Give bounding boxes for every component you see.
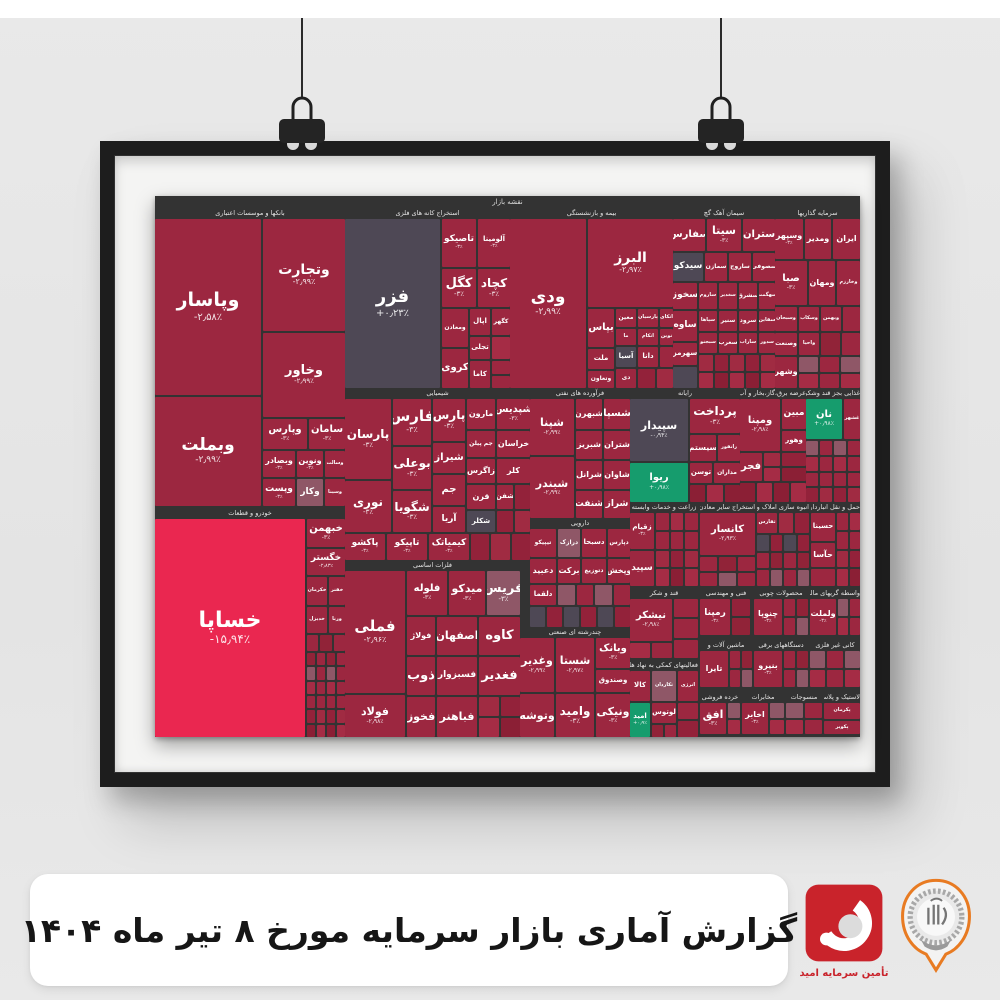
- hanging-string-right: [720, 18, 722, 98]
- treemap-cell-pharma: وپخش: [608, 559, 630, 583]
- treemap-cell-small: [834, 488, 846, 502]
- market-map-poster: نقشه بازار بانکها و موسسات اعتباریوپاسار…: [155, 196, 860, 737]
- cell-ticker: دتوزیع: [585, 568, 604, 574]
- treemap-cell-multi-industry: وغدیر-۲٫۹۹٪: [520, 638, 554, 692]
- treemap-cell-small: [337, 725, 345, 737]
- treemap-cell-small: [827, 651, 842, 668]
- treemap-cell-small: [821, 333, 840, 355]
- treemap-cell-small: [690, 485, 705, 502]
- treemap-cell-auto-parts: خگستر-۲٫۸۳٪: [307, 549, 345, 575]
- sector-other-mining: استخراج سایر معادنکانسار-۲٫۹۳٪: [700, 502, 755, 586]
- cell-ticker: معین: [619, 315, 634, 321]
- cell-ticker: اپال: [473, 318, 487, 325]
- cell-ticker: ریوا: [649, 473, 668, 484]
- cell-ticker: شپدیس: [497, 405, 530, 416]
- cell-change-percent: -۳٪: [498, 596, 508, 604]
- cell-ticker: شفن: [497, 493, 513, 500]
- treemap-cell-small: [770, 703, 784, 718]
- cell-ticker: سهگمت: [759, 293, 775, 298]
- treemap-cell-small: [656, 569, 669, 586]
- treemap-cell-small: [581, 607, 596, 627]
- cell-change-percent: -۳٪: [403, 549, 410, 555]
- cell-ticker: سیستم: [690, 444, 716, 452]
- cell-ticker: پکرمان: [833, 708, 850, 713]
- cell-change-percent: -۳٪: [720, 238, 729, 245]
- cell-ticker: تیپیکو: [535, 540, 552, 546]
- sector-utilities: عرضه برق،گاز،بخار و آب گرمومپنا-۲٫۹۸٪مبی…: [740, 388, 806, 502]
- cell-change-percent: -۳٪: [406, 426, 417, 435]
- treemap-cell-small: [764, 468, 780, 481]
- treemap-cell-small: [595, 585, 612, 605]
- treemap-cell-small: [761, 373, 775, 389]
- cell-ticker: پاکشو: [352, 539, 379, 548]
- treemap-cell-small: [738, 573, 755, 587]
- sector-cement-lime-gypsum: سیمان آهک گچسفارسسیتا-۳٪سترانسیدکوسمازنس…: [673, 208, 775, 388]
- cell-ticker: شپنا: [540, 417, 564, 429]
- cell-ticker: سغرب: [719, 340, 737, 346]
- treemap-cell-small: [850, 513, 861, 530]
- treemap-cell-insurance-pension: وتعاون: [588, 371, 614, 388]
- cell-change-percent: -۳٪: [764, 619, 771, 625]
- treemap-cell-investments: وسکاب: [799, 307, 819, 331]
- treemap-cell-basic-metals: فسبزوار: [437, 657, 477, 695]
- treemap-cell-small: [307, 667, 315, 679]
- treemap-cell-small: [742, 670, 752, 687]
- sector-transport-warehousing: حمل و نقل انبارداری وحسیناحآسا: [811, 502, 860, 586]
- cell-change-percent: -۲٫۸۳٪: [319, 564, 333, 570]
- treemap-cell-cement-lime-gypsum: سغدیر: [719, 283, 737, 309]
- cell-ticker: سصوفی: [753, 264, 775, 270]
- treemap-cell-small: [771, 535, 783, 551]
- cell-ticker: خبهمن: [309, 524, 343, 535]
- treemap-cell-cement-lime-gypsum: سمازن: [705, 253, 727, 281]
- sector-header-agriculture: زراعت و خدمات وابسته: [630, 502, 698, 513]
- treemap-cell-small: [671, 513, 684, 530]
- treemap-cell-small: [512, 534, 530, 560]
- cell-ticker: فملی: [354, 619, 395, 635]
- cell-ticker: البرز: [614, 251, 647, 266]
- cell-ticker: سپید: [631, 564, 652, 573]
- cell-ticker: سپیدار: [641, 420, 677, 432]
- cell-ticker: کانسار: [711, 525, 744, 536]
- cell-change-percent: -۲٫۵۸٪: [194, 312, 222, 323]
- treemap-cell-chemicals: جم پیلن: [467, 431, 495, 457]
- sector-chemicals: شیمیاییپارسان-۳٪نوری-۳٪پاکشو-۳٪تاپیکو-۳٪…: [345, 388, 530, 560]
- treemap-cell-small: [674, 599, 698, 617]
- treemap-cell-small: [671, 532, 684, 549]
- sector-auto-parts: خودرو و قطعاتخساپا-۱۵٫۹۴٪خبهمن-۳٪خگستر-۲…: [155, 508, 345, 737]
- cell-ticker: شبندر: [536, 478, 568, 490]
- treemap-cell-small: [771, 570, 783, 586]
- cell-ticker: فخوز: [407, 711, 435, 723]
- cell-change-percent: -۳٪: [423, 595, 432, 602]
- hanging-string-left: [301, 18, 303, 98]
- cell-ticker: کاوه: [485, 629, 513, 643]
- cell-ticker: خراسان: [498, 440, 529, 448]
- cell-ticker: شنفت: [576, 500, 602, 509]
- cell-change-percent: -۲٫۹۸٪: [752, 427, 769, 434]
- cell-change-percent: -۳٪: [764, 671, 771, 677]
- sector-header-pharma: دارویی: [530, 518, 630, 529]
- cell-ticker: ومعادن: [444, 325, 465, 331]
- sector-banks: بانکها و موسسات اعتباریوپاسار-۲٫۵۸٪وتجار…: [155, 208, 345, 506]
- treemap-cell-small: [656, 513, 669, 530]
- sector-header-financial-intermediation: واسطه گریهای مالی: [810, 588, 860, 599]
- cell-ticker: شسپا: [604, 409, 630, 420]
- treemap-cell-auto-parts: خبهمن-۳٪: [307, 519, 345, 547]
- treemap-cell-oil-products: شاوان: [604, 461, 630, 489]
- treemap-cell-multi-industry: وتوشه: [520, 694, 554, 737]
- treemap-cell-banks: وپاسار-۲٫۵۸٪: [155, 219, 261, 395]
- cell-change-percent: -۳٪: [609, 655, 618, 662]
- treemap-cell-banks: وتجارت-۲٫۹۹٪: [263, 219, 345, 331]
- cell-ticker: مبین: [783, 409, 804, 418]
- treemap-cell-small: [797, 599, 808, 616]
- cell-ticker: آلومینا: [483, 236, 505, 243]
- treemap-cell-pharma: دتوزیع: [582, 559, 606, 583]
- treemap-cell-basic-metals: اصفهان: [437, 617, 477, 655]
- treemap-cell-basic-metals: فباهنر: [437, 697, 477, 737]
- cell-ticker: جم: [441, 485, 456, 496]
- treemap-cell-cement-lime-gypsum: سشرق: [739, 283, 757, 309]
- treemap-cell-small: [764, 453, 780, 466]
- treemap-cell-small: [820, 441, 832, 455]
- treemap-cell-auto-parts: خساپا-۱۵٫۹۴٪: [155, 519, 305, 737]
- treemap-cell-auto-parts: ورنا: [329, 607, 345, 633]
- treemap-cell-metal-ores-mining: آلومینا-۳٪: [478, 219, 510, 267]
- cell-change-percent: +۰٫۹۸٪: [814, 421, 834, 428]
- cell-ticker: پرداخت: [693, 405, 737, 418]
- cell-change-percent: -۳٪: [445, 549, 452, 555]
- cell-change-percent: -۲٫۹۷٪: [619, 266, 642, 275]
- treemap-cell-small: [757, 570, 769, 586]
- cell-ticker: نیشکر: [636, 611, 666, 622]
- treemap-cell-small: [699, 355, 713, 371]
- treemap-cell-basic-metals: فلوله-۳٪: [407, 571, 447, 615]
- sector-header-utilities: عرضه برق،گاز،بخار و آب گرم: [740, 388, 806, 399]
- treemap-cell-small: [784, 570, 796, 586]
- treemap-cell-small: [327, 710, 335, 722]
- treemap-cell-small: [761, 355, 775, 371]
- treemap-cell-small: [307, 725, 315, 737]
- treemap-cell-real-estate: ثفارس: [757, 513, 777, 533]
- cell-ticker: سهرمز: [673, 350, 697, 357]
- treemap-cell-banks: وکار: [297, 479, 323, 506]
- cell-ticker: فریس: [487, 582, 520, 596]
- treemap-cell-small: [307, 682, 315, 694]
- cell-ticker: وکار: [300, 488, 319, 497]
- cell-ticker: وسبحان: [776, 316, 796, 321]
- cell-ticker: سپاها: [701, 318, 715, 323]
- cell-ticker: توسن: [691, 469, 711, 476]
- cell-ticker: فولاژ: [411, 632, 432, 640]
- cell-ticker: ومپنا: [748, 416, 772, 427]
- treemap-cell-cement-lime-gypsum: سغرب: [719, 333, 737, 353]
- cell-ticker: فزر: [376, 288, 409, 307]
- cell-ticker: فولاد: [361, 706, 389, 718]
- cell-ticker: وتوشه: [520, 710, 554, 722]
- treemap-cell-multi-industry: وصندوق: [596, 670, 630, 692]
- treemap-cell-small: [797, 670, 808, 687]
- treemap-cell-investments: صبا-۳٪: [775, 261, 807, 305]
- treemap-cell-small: [577, 585, 594, 605]
- treemap-cell-small: [337, 710, 345, 722]
- cell-ticker: شستا: [560, 655, 591, 667]
- cell-ticker: دعبید: [533, 567, 554, 575]
- cell-ticker: مداران: [717, 470, 737, 476]
- treemap-cell-rubber-plastic: پکویر: [824, 721, 860, 734]
- treemap-cell-chemicals: خراسان: [497, 431, 530, 457]
- treemap-cell-small: [842, 333, 861, 355]
- treemap-cell-small: [732, 618, 750, 635]
- treemap-cell-small: [725, 485, 740, 502]
- treemap-cell-small: [337, 653, 345, 665]
- binder-clip-right-icon: [698, 92, 744, 150]
- treemap-cell-pharma: دعبید: [530, 559, 556, 583]
- sector-textiles: منسوجات: [786, 692, 822, 737]
- treemap-cell-cement-lime-gypsum: سرود: [739, 311, 757, 331]
- treemap-cell-small: [834, 457, 846, 471]
- cell-change-percent: -۲٫۹۹٪: [294, 378, 314, 386]
- cell-ticker: شبریز: [577, 441, 601, 449]
- cell-change-percent: -۳٪: [711, 619, 718, 625]
- cell-ticker: کالا: [634, 682, 646, 689]
- cell-ticker: کگل: [446, 277, 473, 291]
- cell-ticker: خفنر: [331, 588, 343, 593]
- treemap-cell-small: [791, 483, 806, 502]
- treemap-cell-auxiliary-financial: امید+۰٫۹٪: [630, 703, 650, 737]
- treemap-cell-insurance-pension: ما: [616, 329, 636, 345]
- treemap-cell-chemicals: مارون: [467, 399, 495, 429]
- treemap-cell-small: [471, 534, 489, 560]
- treemap-cell-small: [327, 725, 335, 737]
- treemap-cell-small: [795, 513, 809, 533]
- cell-change-percent: -۳٪: [489, 291, 499, 299]
- cell-change-percent: -۲٫۹۹٪: [544, 490, 561, 497]
- cell-ticker: تجلی: [471, 344, 489, 351]
- treemap-cell-small: [820, 457, 832, 471]
- sector-computer: رایانهسپیدار-۰٫۹۴٪ریوا+۰٫۹۸٪پرداخت-۳٪سیس…: [630, 388, 740, 502]
- cell-ticker: پارس: [433, 409, 465, 422]
- treemap-cell-small: [337, 682, 345, 694]
- cell-ticker: سمازن: [706, 264, 727, 270]
- cell-ticker: شکلر: [472, 518, 490, 525]
- treemap-cell-small: [850, 618, 860, 635]
- omid-investment-logo: تأمین سرمایه امید: [799, 883, 889, 989]
- sector-header-computer: رایانه: [630, 388, 740, 399]
- sector-header-chemicals: شیمیایی: [345, 388, 530, 399]
- treemap-cell-wood-products: چنوپا-۳٪: [754, 599, 782, 635]
- cell-change-percent: -۳٪: [363, 442, 373, 450]
- treemap-cell-basic-metals: فغدیر: [479, 657, 520, 695]
- treemap-cell-insurance-pension: ملت: [588, 349, 614, 369]
- sector-header-investments: سرمایه گذاریها: [775, 208, 860, 219]
- sector-basic-metals: فلزات اساسیفملی-۲٫۹۶٪فولاد-۲٫۹۸٪فلوله-۳٪…: [345, 560, 520, 737]
- treemap-cell-metal-ores-mining: کاما: [470, 361, 490, 388]
- treemap-cell-small: [657, 369, 674, 388]
- treemap-cell-small: [746, 373, 760, 389]
- treemap-cell-small: [678, 703, 698, 719]
- treemap-cell-pharma: برکت: [558, 559, 580, 583]
- treemap-cell-small: [492, 361, 510, 374]
- report-banner-title: گزارش آماری بازار سرمایه مورخ ۸ تیر ماه …: [21, 911, 798, 950]
- cell-ticker: سیدکو: [674, 262, 703, 271]
- sector-header-sugar: قند و شکر: [630, 588, 698, 599]
- treemap-cell-small: [728, 703, 740, 718]
- cell-change-percent: -۳٪: [751, 720, 758, 726]
- treemap-cell-small: [784, 670, 795, 687]
- treemap-cell-small: [838, 599, 848, 616]
- treemap-cell-small: [558, 585, 575, 605]
- sector-header-non-metallic-minerals: کانی غیر فلزی: [810, 640, 860, 651]
- sector-header-food-ex-sugar: غذایی بجز قند وشکر: [806, 388, 860, 399]
- cell-change-percent: +۰٫۲۳٪: [376, 308, 409, 319]
- treemap-cell-small: [806, 488, 818, 502]
- cell-ticker: سنیر: [721, 318, 736, 324]
- treemap-cell-metal-ores-mining: ومعادن: [442, 309, 468, 347]
- treemap-cell-oil-products: شسپا: [604, 399, 630, 429]
- treemap-cell-banks: وبملت-۲٫۹۹٪: [155, 397, 261, 506]
- cell-ticker: رانفور: [721, 445, 737, 450]
- cell-change-percent: -۳٪: [463, 596, 472, 603]
- cell-ticker: برکت: [558, 567, 579, 575]
- sector-header-other-mining: استخراج سایر معادن: [700, 502, 755, 513]
- cell-ticker: سیتا: [712, 225, 736, 237]
- treemap-cell-small: [674, 619, 698, 637]
- cell-ticker: انرژی: [681, 683, 695, 688]
- cell-ticker: وخاور: [285, 364, 323, 378]
- treemap-cell-small: [656, 551, 669, 568]
- cell-ticker: سغدیر: [720, 293, 736, 298]
- report-banner: گزارش آماری بازار سرمایه مورخ ۸ تیر ماه …: [30, 874, 788, 986]
- cell-ticker: دی: [622, 375, 631, 381]
- treemap-cell-cement-lime-gypsum: سپاها: [699, 311, 717, 331]
- cell-ticker: وبصادر: [265, 457, 293, 465]
- cell-ticker: سرود: [740, 318, 756, 324]
- cell-ticker: ثفارس: [758, 520, 775, 525]
- treemap-cell-computer: سپیدار-۰٫۹۴٪: [630, 399, 688, 461]
- treemap-cell-banks: وخاور-۲٫۹۹٪: [263, 333, 345, 417]
- treemap-cell-food-ex-sugar: غشهر: [844, 399, 860, 439]
- cell-ticker: سدور: [760, 340, 774, 345]
- treemap-cell-small: [685, 569, 698, 586]
- cell-ticker: فارس: [393, 409, 431, 425]
- treemap-cell-basic-metals: میدکو-۳٪: [449, 571, 485, 615]
- treemap-cell-banks: وپست-۳٪: [263, 479, 295, 506]
- treemap-cell-small: [838, 618, 848, 635]
- sector-header-basic-metals: فلزات اساسی: [345, 560, 520, 571]
- treemap-cell-insurance-pension: آسیا: [616, 347, 636, 367]
- cell-ticker: شرانل: [576, 471, 602, 479]
- treemap-cell-investments: ومهان: [809, 261, 835, 305]
- sector-electrical-devices: دستگاههای برقیبنیرو-۳٪: [754, 640, 808, 690]
- cell-change-percent: -۳٪: [275, 466, 282, 472]
- cell-ticker: وهور: [785, 437, 803, 444]
- treemap-cell-small: [798, 535, 810, 551]
- bank-sepah-emblem-icon: [898, 877, 974, 975]
- treemap-cell-small: [699, 373, 713, 389]
- treemap-cell-small: [665, 725, 676, 737]
- treemap-cell-small: [515, 485, 530, 509]
- treemap-cell-metal-ores-mining: فزر+۰٫۲۳٪: [345, 219, 440, 388]
- cell-change-percent: -۲٫۹۹٪: [544, 430, 561, 437]
- treemap-cell-cement-lime-gypsum: ساراب: [739, 333, 757, 353]
- sector-header-real-estate: انبوه سازی املاک و: [757, 502, 809, 513]
- treemap-cell-small: [779, 513, 793, 533]
- cell-ticker: ساروم: [700, 293, 716, 298]
- treemap-cell-agriculture: زقیام-۳٪: [630, 513, 654, 549]
- treemap-cell-small: [317, 696, 325, 708]
- treemap-cell-chemicals: کلر: [497, 459, 530, 483]
- cell-change-percent: -۳٪: [306, 466, 313, 472]
- treemap-cell-transport-warehousing: حسینا: [811, 513, 835, 541]
- treemap-cell-cement-lime-gypsum: سیتا-۳٪: [707, 219, 741, 251]
- treemap-cell-small: [811, 569, 835, 586]
- sector-food-ex-sugar: غذایی بجز قند وشکرنان+۰٫۹۸٪غشهر: [806, 388, 860, 502]
- treemap-cell-small: [820, 488, 832, 502]
- treemap-cell-auto-parts: خفنر: [329, 577, 345, 605]
- treemap-cell-computer: پرداخت-۳٪: [690, 399, 740, 433]
- cell-ticker: ملت: [594, 355, 609, 362]
- cell-change-percent: -۰٫۹۴٪: [651, 433, 668, 440]
- treemap-cell-cement-lime-gypsum: سهگمت: [759, 283, 775, 309]
- cell-ticker: حآسا: [813, 551, 833, 559]
- treemap-cell-oil-products: شتران: [604, 431, 630, 459]
- cell-ticker: امید: [633, 713, 647, 720]
- cell-ticker: وسالت: [326, 461, 343, 466]
- treemap-cell-small: [740, 483, 755, 502]
- cell-ticker: وصندوق: [599, 677, 628, 684]
- treemap-cell-small: [700, 573, 717, 587]
- cell-ticker: وخارزم: [840, 280, 858, 285]
- cell-change-percent: -۲٫۹۶٪: [364, 636, 387, 645]
- cell-ticker: کروی: [442, 363, 468, 374]
- treemap-cell-computer: رانفور: [718, 435, 740, 461]
- treemap-cell-small: [798, 553, 810, 569]
- cell-ticker: وسینا: [328, 490, 342, 495]
- cell-ticker: ستران: [743, 230, 775, 241]
- treemap-cell-small: [317, 667, 325, 679]
- cell-change-percent: -۲٫۹۹٪: [293, 278, 316, 287]
- cell-change-percent: -۳٪: [787, 285, 796, 292]
- treemap-cell-small: [782, 468, 806, 481]
- cell-ticker: فسبزوار: [438, 671, 476, 680]
- cell-ticker: خساپا: [198, 609, 261, 632]
- sector-header-machinery: ماشین آلات و: [700, 640, 752, 651]
- cell-change-percent: -۳٪: [638, 532, 645, 538]
- cell-ticker: وپست: [265, 485, 293, 494]
- treemap-cell-small: [746, 355, 760, 371]
- cell-ticker: بپاس: [588, 323, 613, 334]
- treemap-cell-computer: سیستم: [690, 435, 716, 461]
- cell-change-percent: -۳٪: [322, 535, 331, 542]
- omid-logo-caption: تأمین سرمایه امید: [799, 968, 889, 979]
- cell-ticker: بنیرو: [758, 662, 777, 670]
- cell-change-percent: -۲٫۹۷٪: [567, 668, 584, 675]
- treemap-cell-investments: وسبحان: [775, 307, 797, 331]
- treemap-cell-cement-lime-gypsum: سقاین: [759, 311, 775, 331]
- sector-agriculture: زراعت و خدمات وابستهزقیام-۳٪سپید: [630, 502, 698, 586]
- cell-ticker: نان: [816, 410, 832, 421]
- sector-header-telecom: مخابرات: [742, 692, 784, 703]
- cell-ticker: سفارس: [673, 230, 705, 241]
- cell-ticker: کلر: [507, 467, 520, 475]
- treemap-cell-small: [834, 473, 846, 487]
- treemap-cell-multi-industry: شستا-۲٫۹۷٪: [556, 638, 594, 692]
- treemap-cell-pharma: دپارس: [608, 529, 630, 557]
- sector-header-multi-industry: چندرشته ای صنعتی: [520, 627, 630, 638]
- treemap-cell-cement-lime-gypsum: ساروم: [699, 283, 717, 309]
